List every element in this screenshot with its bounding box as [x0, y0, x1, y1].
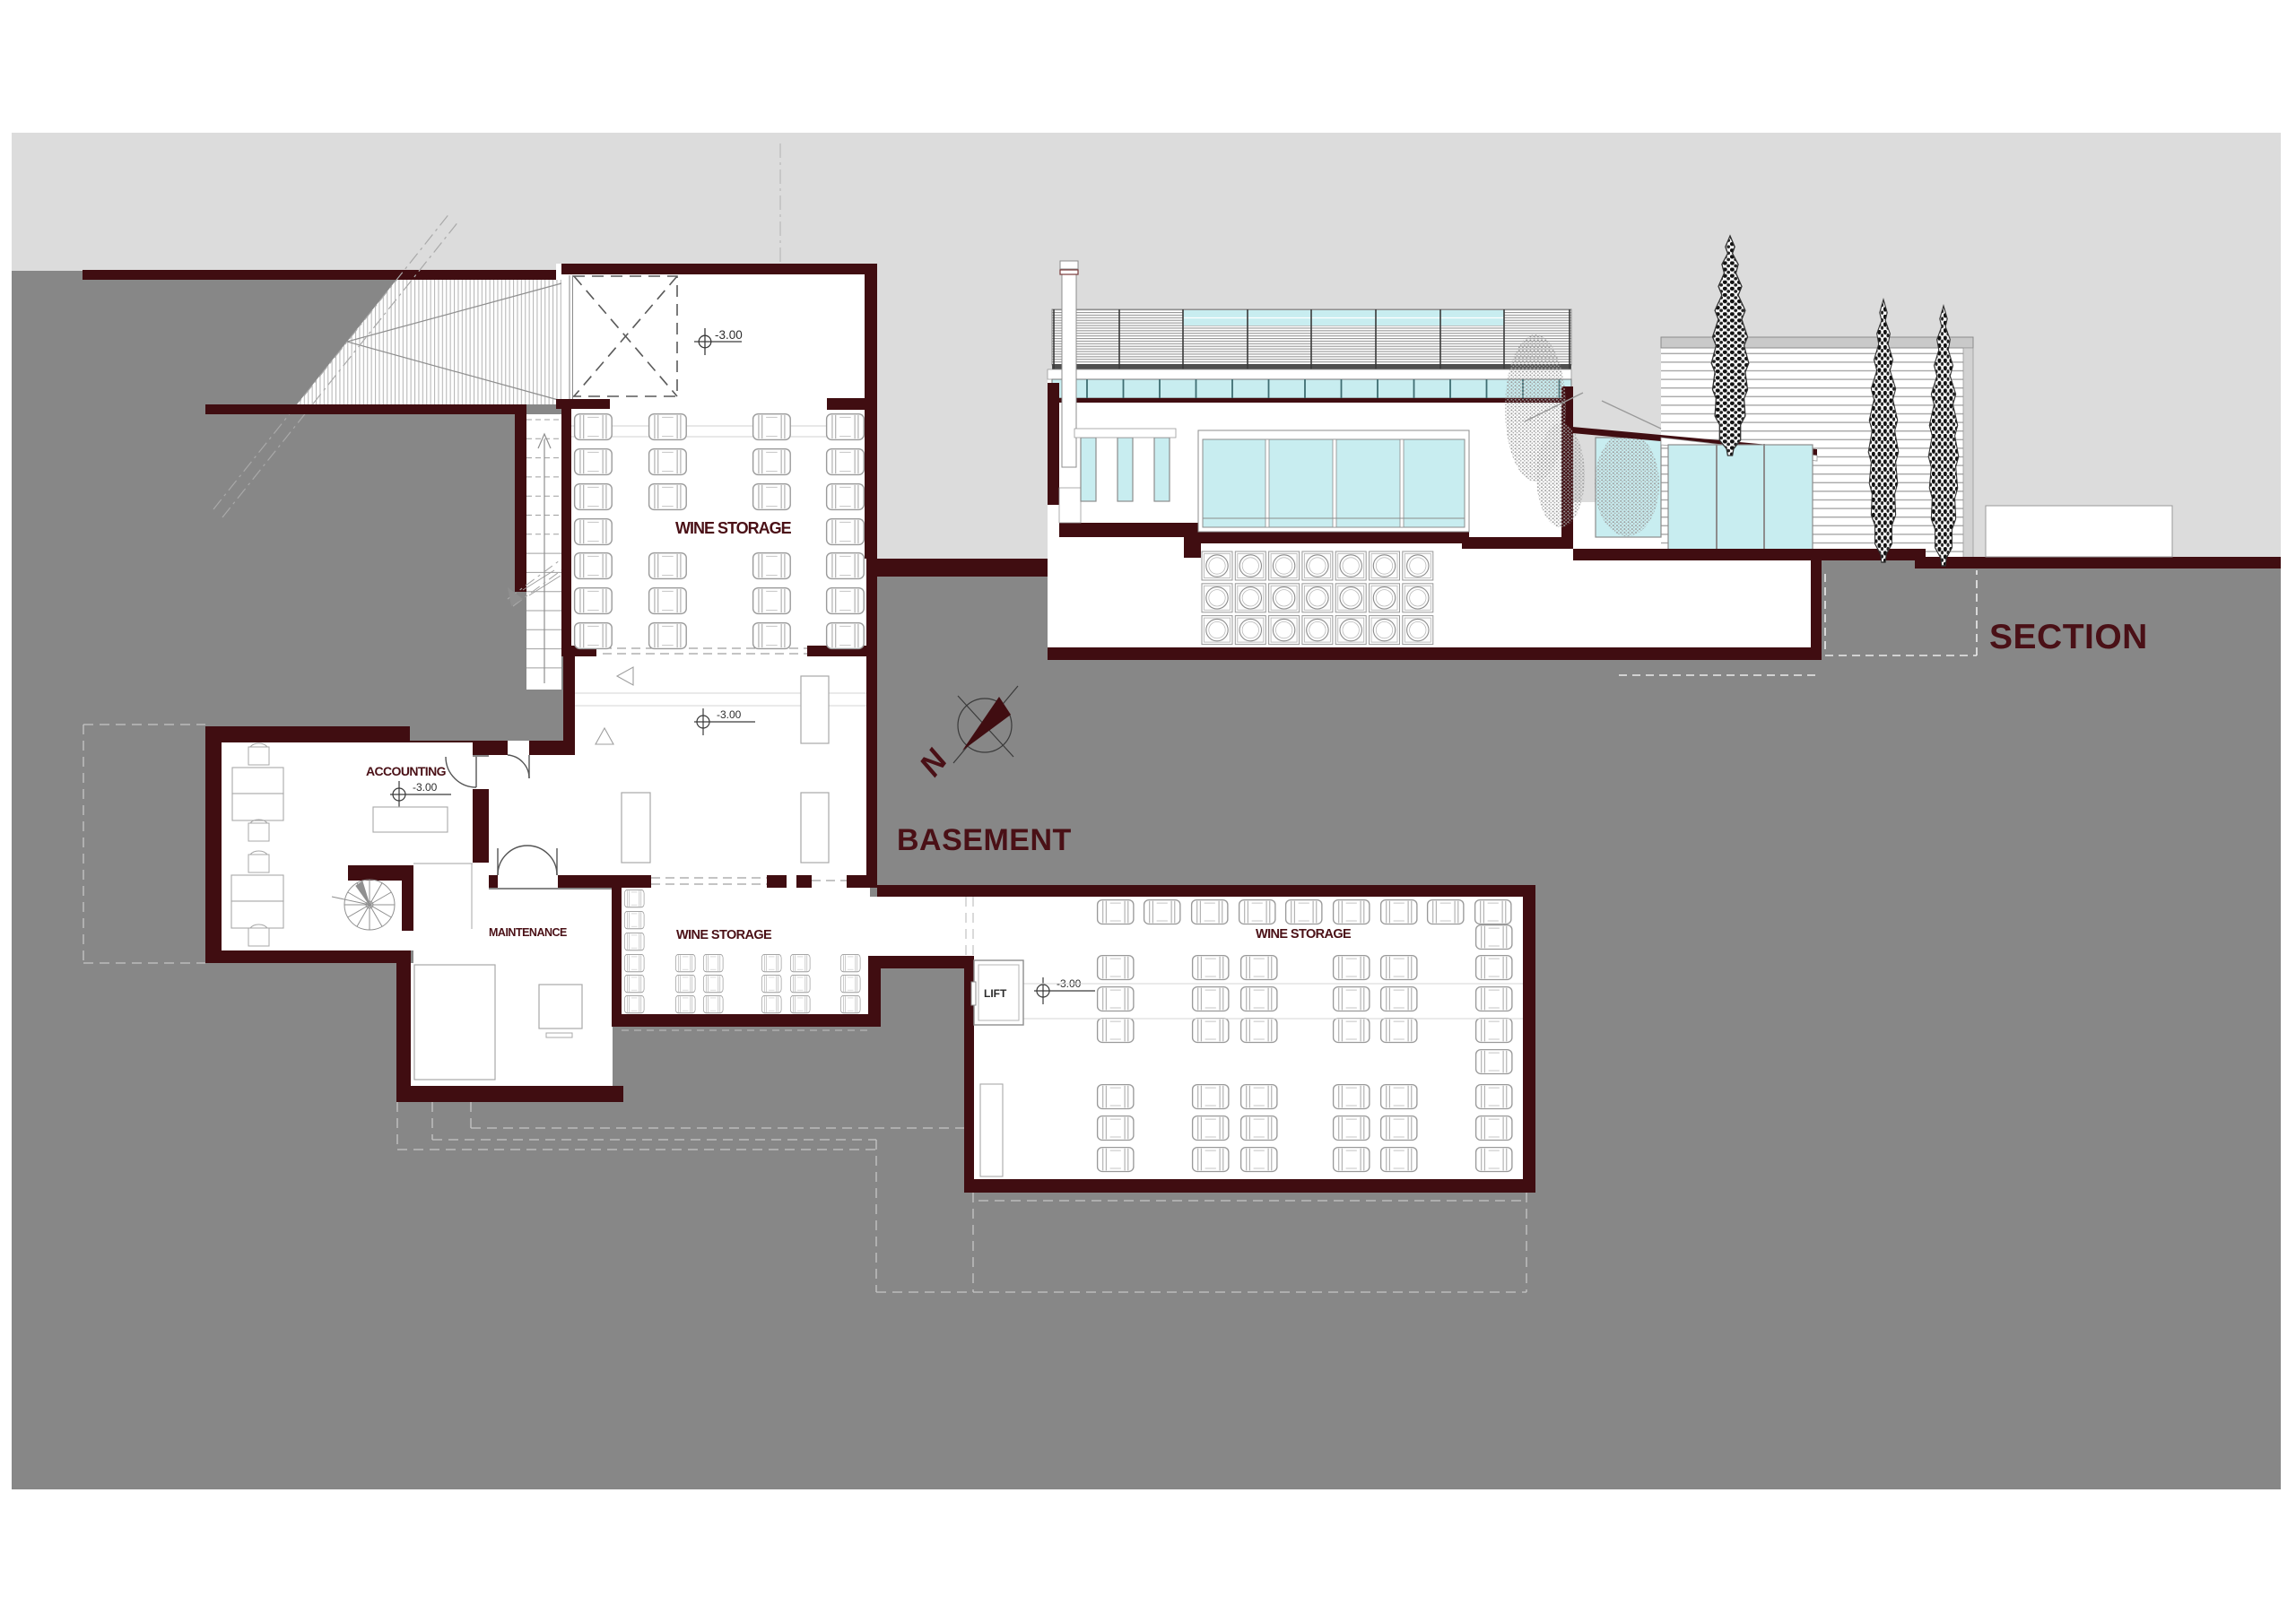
svg-text:ACCOUNTING: ACCOUNTING — [366, 764, 447, 778]
svg-text:WINE STORAGE: WINE STORAGE — [675, 519, 792, 537]
svg-text:MAINTENANCE: MAINTENANCE — [489, 926, 567, 939]
svg-text:BASEMENT: BASEMENT — [897, 823, 1072, 857]
svg-text:WINE STORAGE: WINE STORAGE — [676, 928, 772, 942]
svg-text:-3.00: -3.00 — [413, 781, 438, 794]
svg-text:-3.00: -3.00 — [715, 328, 743, 342]
svg-text:WINE STORAGE: WINE STORAGE — [1256, 927, 1352, 942]
svg-text:-3.00: -3.00 — [717, 708, 742, 721]
svg-text:SECTION: SECTION — [1989, 618, 2148, 656]
svg-text:LIFT: LIFT — [984, 987, 1007, 1000]
